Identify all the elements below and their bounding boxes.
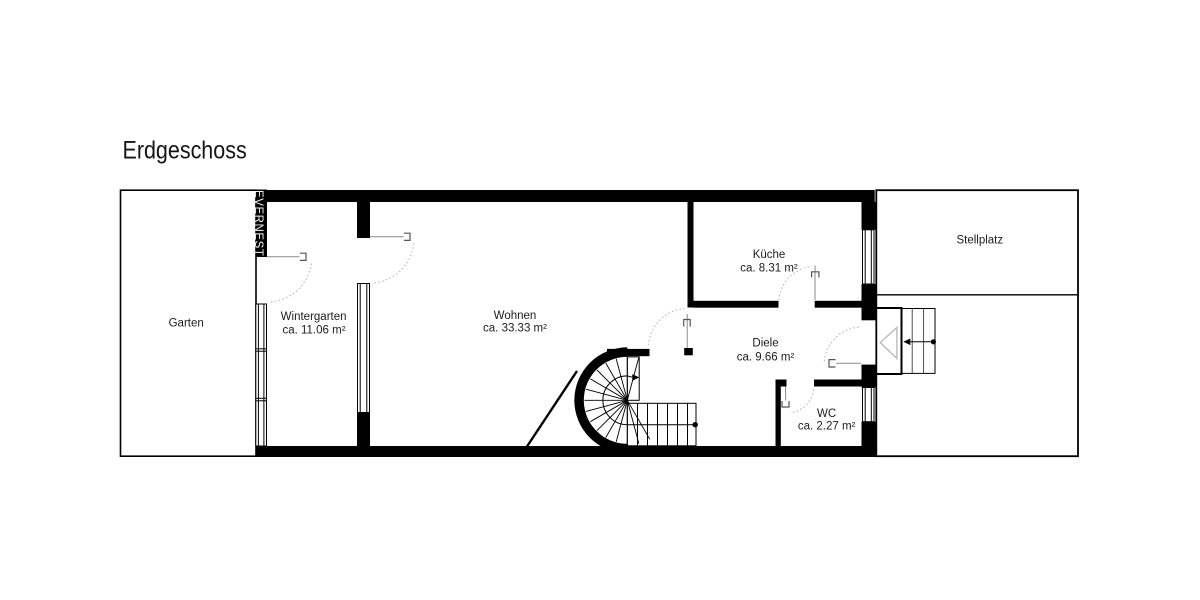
svg-text:Wohnen: Wohnen [494,310,537,322]
svg-text:Erdgeschoss: Erdgeschoss [123,136,247,164]
svg-text:ca. 8.31 m²: ca. 8.31 m² [740,263,798,275]
svg-text:ca. 11.06 m²: ca. 11.06 m² [282,325,345,337]
svg-text:Wintergarten: Wintergarten [281,311,347,323]
svg-text:ca. 2.27 m²: ca. 2.27 m² [798,421,856,433]
svg-text:Küche: Küche [753,249,786,261]
svg-text:Diele: Diele [752,338,778,350]
svg-text:Stellplatz: Stellplatz [956,235,1003,247]
svg-text:Garten: Garten [169,318,204,330]
svg-text:WC: WC [817,408,836,420]
svg-text:ca. 33.33 m²: ca. 33.33 m² [483,323,547,335]
svg-text:EVERNEST: EVERNEST [252,190,264,256]
svg-text:ca. 9.66 m²: ca. 9.66 m² [737,352,795,364]
